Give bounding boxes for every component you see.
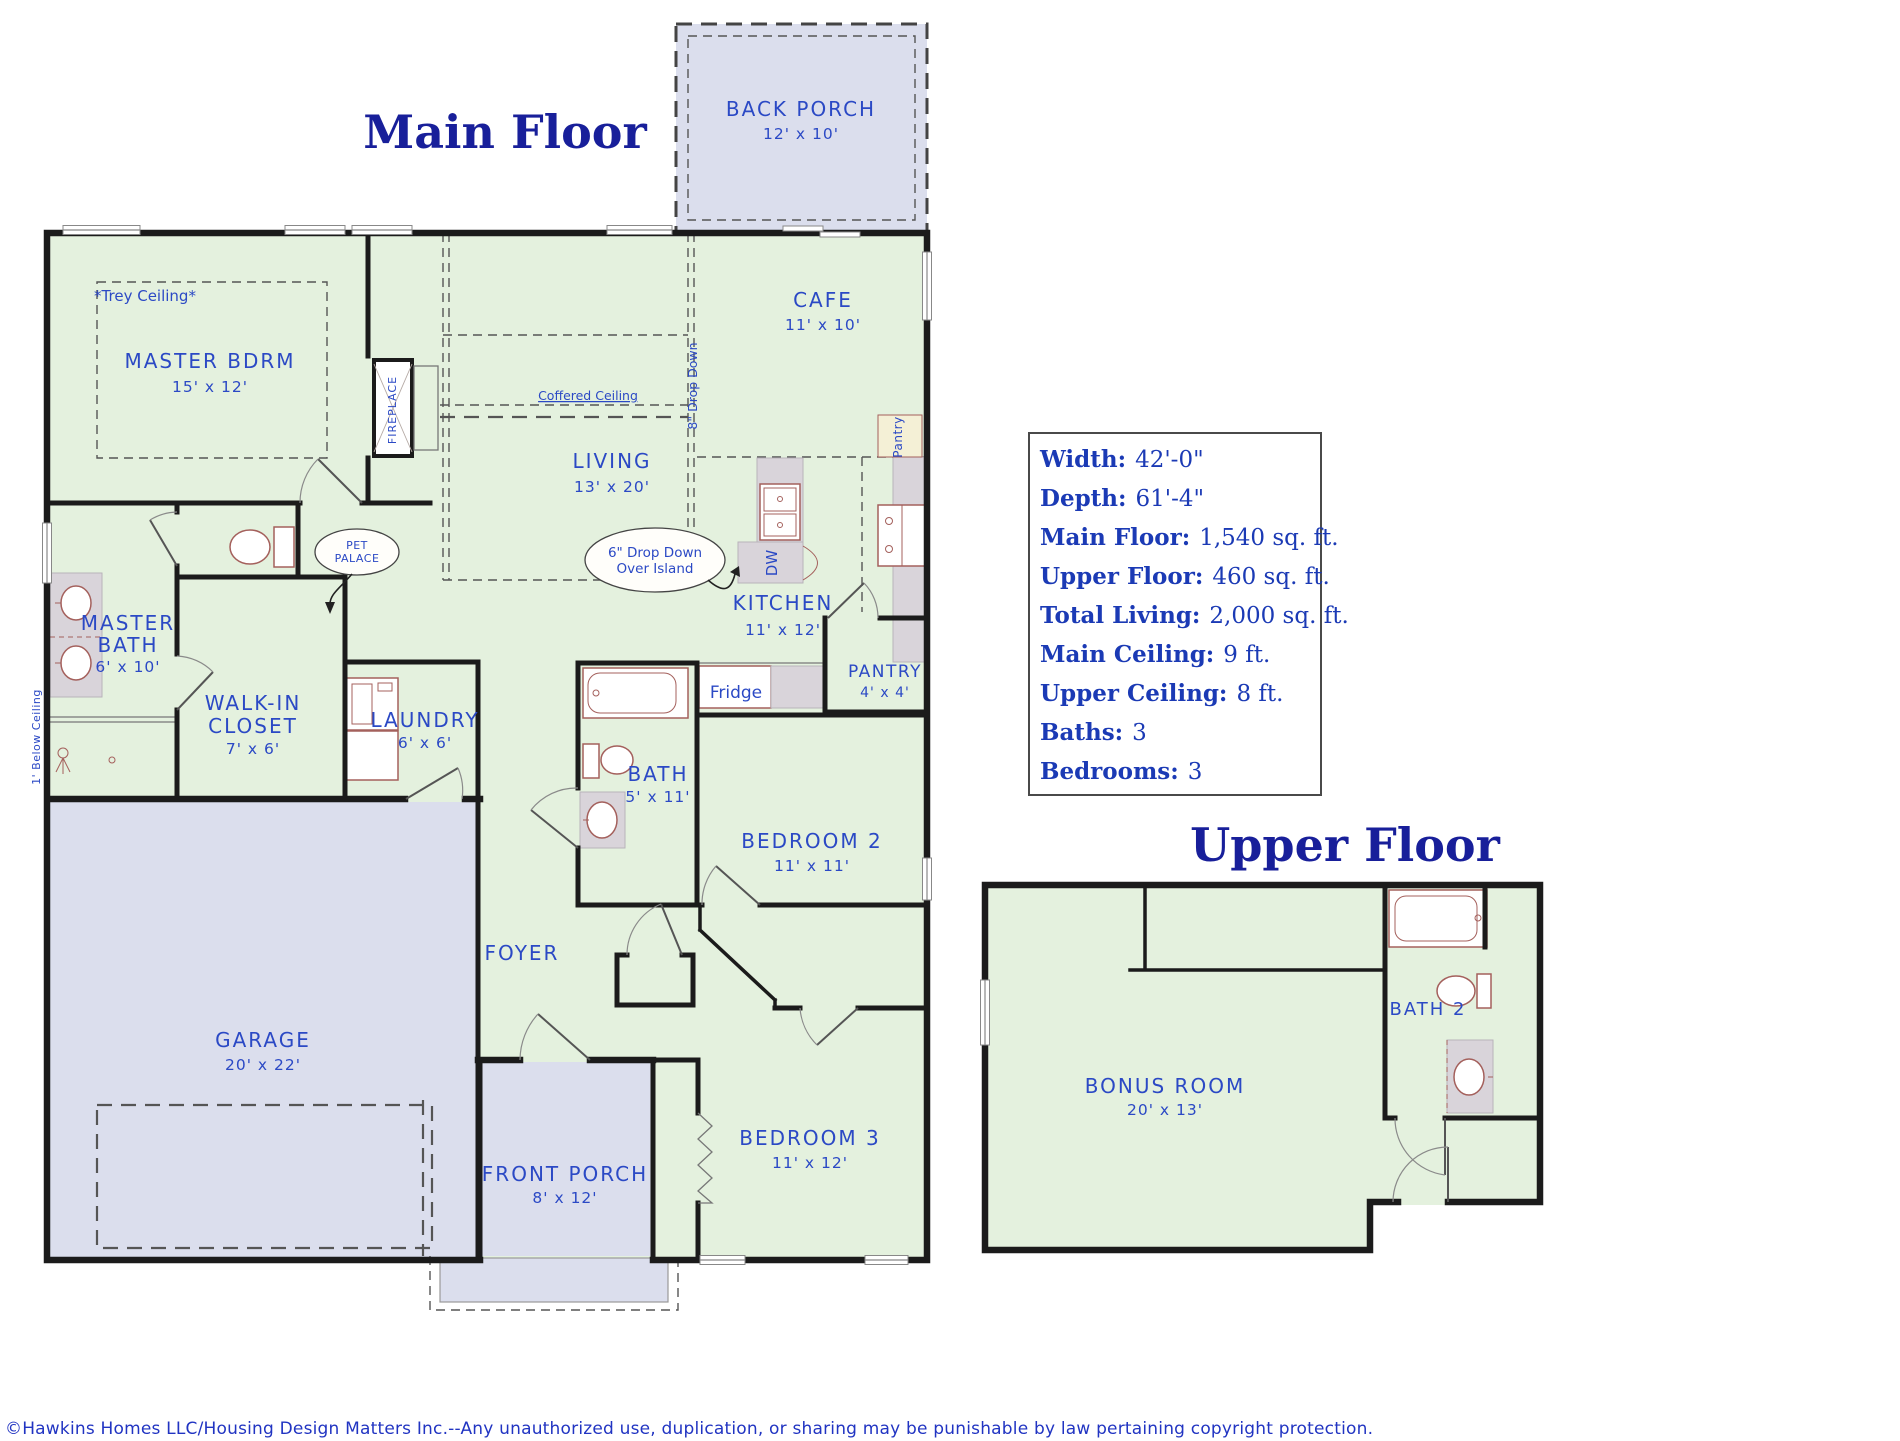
spec-row-width: Width:42'-0"	[1040, 440, 1310, 479]
spec-value: 42'-0"	[1135, 447, 1204, 473]
main-floor-title: Main Floor	[295, 105, 715, 159]
floor-plan-drawing: BACK PORCH 12' x 10' CAFE 11' x 10' MAST…	[0, 0, 1900, 1441]
front-porch-region	[481, 1062, 652, 1256]
master-bath-label-1: MASTER	[81, 611, 175, 635]
spec-value: 61'-4"	[1136, 486, 1205, 512]
spec-row-upper-ceiling: Upper Ceiling:8 ft.	[1040, 674, 1310, 713]
bath-toilet-tank	[583, 744, 599, 778]
kitchen-dims: 11' x 12'	[745, 621, 821, 639]
bonus-room-label: BONUS ROOM	[1085, 1074, 1245, 1098]
spec-value: 460 sq. ft.	[1212, 564, 1329, 590]
cafe-dims: 11' x 10'	[785, 316, 861, 334]
spec-value: 8 ft.	[1236, 681, 1283, 707]
back-porch-dims: 12' x 10'	[763, 125, 839, 143]
bath-sink	[587, 802, 617, 838]
bath2-label: BATH 2	[1390, 999, 1467, 1020]
bath2-toilet-tank	[1477, 974, 1491, 1008]
drop-down-cloud-line2: Over Island	[617, 561, 694, 577]
stair-notch	[1368, 1205, 1540, 1252]
garage-dims: 20' x 22'	[225, 1056, 301, 1074]
porch-stoop	[440, 1258, 668, 1302]
pantry-cabinet-label: Pantry	[891, 416, 905, 457]
kitchen-label: KITCHEN	[733, 591, 834, 615]
spec-value: 9 ft.	[1223, 642, 1270, 668]
sliding-door-panel-1	[783, 226, 823, 231]
spec-label: Main Floor:	[1040, 524, 1190, 551]
wic-dims: 7' x 6'	[226, 740, 280, 758]
spec-row-main-ceiling: Main Ceiling:9 ft.	[1040, 635, 1310, 674]
wic-label-2: CLOSET	[208, 714, 298, 738]
below-ceiling-note: 1' Below Ceiling	[30, 689, 43, 785]
living-dims: 13' x 20'	[574, 478, 650, 496]
spec-value: 1,540 sq. ft.	[1199, 525, 1338, 551]
master-sink-2	[61, 646, 91, 680]
dryer	[346, 731, 398, 780]
front-porch-dims: 8' x 12'	[532, 1189, 597, 1207]
bedroom2-label: BEDROOM 2	[741, 829, 882, 853]
spec-value: 2,000 sq. ft.	[1209, 603, 1348, 629]
coffered-ceiling-note: Coffered Ceiling	[538, 388, 638, 403]
spec-label: Width:	[1040, 446, 1126, 473]
spec-label: Upper Ceiling:	[1040, 680, 1227, 707]
master-bath-label-2: BATH	[97, 633, 158, 657]
back-porch-label: BACK PORCH	[726, 97, 876, 121]
dishwasher-label: DW	[763, 550, 781, 577]
drop-down-cloud-line1: 6" Drop Down	[608, 545, 702, 561]
laundry-dims: 6' x 6'	[398, 734, 452, 752]
spec-row-baths: Baths:3	[1040, 713, 1310, 752]
spec-row-depth: Depth:61'-4"	[1040, 479, 1310, 518]
trey-ceiling-note: *Trey Ceiling*	[94, 287, 196, 305]
fireplace-label: FIREPLACE	[386, 376, 399, 444]
fridge-counter	[771, 666, 825, 708]
pet-palace-line2: PALACE	[335, 552, 380, 565]
spec-label: Depth:	[1040, 485, 1127, 512]
spec-row-upper-floor: Upper Floor:460 sq. ft.	[1040, 557, 1310, 596]
spec-row-main-floor: Main Floor:1,540 sq. ft.	[1040, 518, 1310, 557]
specs-box: Width:42'-0" Depth:61'-4" Main Floor:1,5…	[1028, 432, 1322, 796]
spec-label: Total Living:	[1040, 602, 1200, 629]
fridge-label: Fridge	[710, 683, 762, 703]
spec-label: Upper Floor:	[1040, 563, 1203, 590]
spec-value: 3	[1188, 759, 1203, 785]
wic-label-1: WALK-IN	[205, 691, 302, 715]
bath2-sink	[1454, 1059, 1484, 1095]
spec-label: Baths:	[1040, 719, 1123, 746]
master-toilet-bowl	[230, 530, 270, 564]
spec-label: Main Ceiling:	[1040, 641, 1214, 668]
upper-floor-title: Upper Floor	[1135, 818, 1555, 872]
bath-label: BATH	[627, 762, 688, 786]
pantry-label: PANTRY	[848, 662, 922, 682]
master-bath-dims: 6' x 10'	[95, 658, 160, 676]
bedroom3-label: BEDROOM 3	[739, 1126, 880, 1150]
bath-dims: 5' x 11'	[625, 788, 690, 806]
front-porch-label: FRONT PORCH	[482, 1162, 648, 1186]
floor-plan-page: BACK PORCH 12' x 10' CAFE 11' x 10' MAST…	[0, 0, 1900, 1441]
spec-label: Bedrooms:	[1040, 758, 1179, 785]
bonus-room-dims: 20' x 13'	[1127, 1101, 1203, 1119]
foyer-label: FOYER	[485, 941, 560, 965]
copyright-notice: ©Hawkins Homes LLC/Housing Design Matter…	[5, 1419, 1373, 1439]
bedroom3-dims: 11' x 12'	[772, 1154, 848, 1172]
spec-row-total-living: Total Living:2,000 sq. ft.	[1040, 596, 1310, 635]
spec-value: 3	[1132, 720, 1147, 746]
drop-down-8-note: 8" Drop Down	[685, 342, 700, 429]
pantry-dims: 4' x 4'	[860, 685, 910, 701]
living-label: LIVING	[572, 449, 651, 473]
bedroom2-dims: 11' x 11'	[774, 857, 850, 875]
master-bdrm-label: MASTER BDRM	[124, 349, 295, 373]
laundry-label: LAUNDRY	[370, 708, 479, 732]
sliding-door-panel-2	[820, 232, 860, 237]
spec-row-bedrooms: Bedrooms:3	[1040, 752, 1310, 791]
cafe-label: CAFE	[793, 288, 853, 312]
master-bdrm-dims: 15' x 12'	[172, 378, 248, 396]
pet-palace-line1: PET	[346, 539, 368, 552]
garage-label: GARAGE	[215, 1028, 311, 1052]
master-toilet-tank	[274, 527, 294, 567]
kitchen-sink	[760, 484, 800, 540]
